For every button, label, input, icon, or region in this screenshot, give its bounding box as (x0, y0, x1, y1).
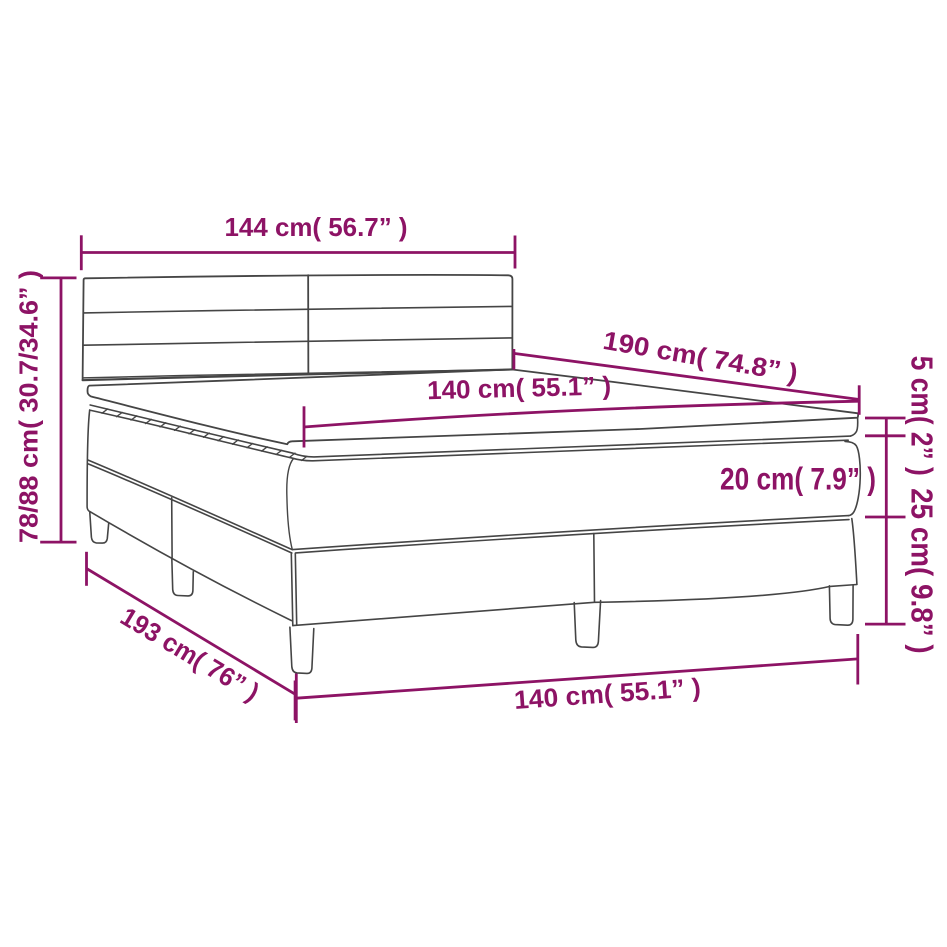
svg-text:144 cm( 56.7” ): 144 cm( 56.7” ) (225, 212, 408, 242)
svg-text:25 cm( 9.8” ): 25 cm( 9.8” ) (905, 488, 940, 654)
svg-text:5 cm( 2” ): 5 cm( 2” ) (905, 356, 940, 476)
svg-text:20 cm( 7.9” ): 20 cm( 7.9” ) (720, 461, 876, 497)
svg-text:78/88 cm( 30.7/34.6” ): 78/88 cm( 30.7/34.6” ) (14, 270, 44, 543)
svg-text:140 cm( 55.1” ): 140 cm( 55.1” ) (427, 370, 612, 405)
